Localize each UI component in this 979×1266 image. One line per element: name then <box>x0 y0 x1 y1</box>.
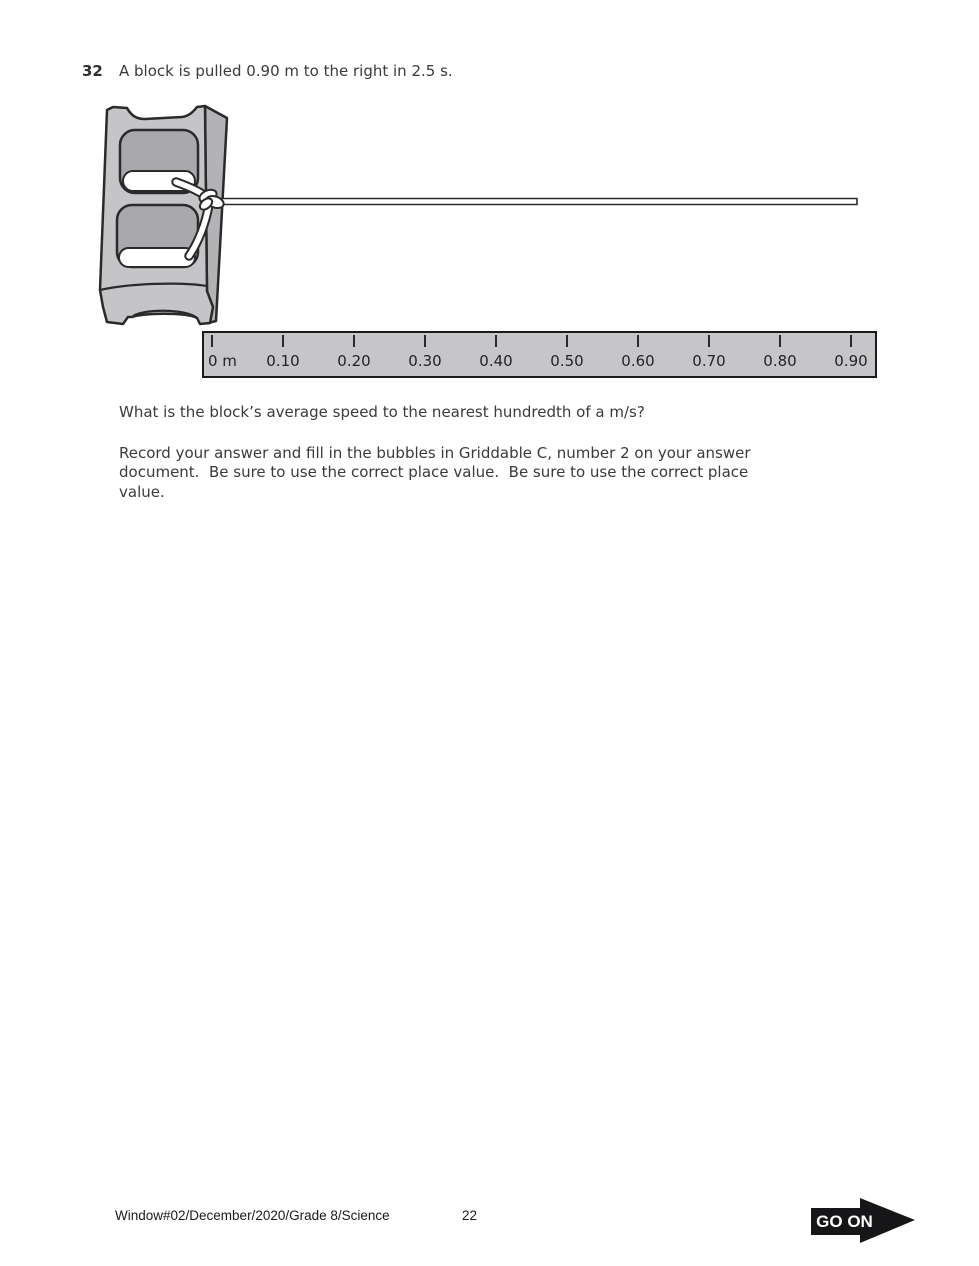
ruler-tick <box>708 335 710 347</box>
ruler-tick <box>850 335 852 347</box>
ruler-tick <box>211 335 213 347</box>
ruler-tick-label: 0.40 <box>466 352 526 370</box>
ruler-tick-label: 0 m <box>208 352 237 370</box>
ruler-tick-label: 0.20 <box>324 352 384 370</box>
document-id: Window#02/December/2020/Grade 8/Science <box>115 1208 390 1223</box>
question-intro-text: A block is pulled 0.90 m to the right in… <box>119 62 453 80</box>
page-number: 22 <box>462 1208 477 1223</box>
go-on-marker: GO ON <box>811 1208 878 1235</box>
go-on-label: GO ON <box>816 1212 873 1232</box>
rope-line <box>218 199 857 205</box>
ruler-tick-label: 0.30 <box>395 352 455 370</box>
ruler-tick <box>566 335 568 347</box>
ruler-tick-label: 0.10 <box>253 352 313 370</box>
ruler-tick-label: 0.80 <box>750 352 810 370</box>
test-document-page: 32 A block is pulled 0.90 m to the right… <box>0 0 979 1266</box>
ruler-tick <box>637 335 639 347</box>
question-number: 32 <box>82 62 103 80</box>
answer-instructions-line: Record your answer and fill in the bubbl… <box>119 444 751 463</box>
block-rope-illustration <box>90 95 880 335</box>
block-lower-hole-highlight <box>119 248 195 267</box>
ruler-tick <box>353 335 355 347</box>
ruler-tick-label: 0.50 <box>537 352 597 370</box>
answer-instructions-line: document. Be sure to use the correct pla… <box>119 463 751 482</box>
distance-ruler: 0 m0.100.200.300.400.500.600.700.800.90 <box>202 331 877 378</box>
ruler-tick <box>495 335 497 347</box>
ruler-tick-label: 0.90 <box>821 352 881 370</box>
ruler-tick-label: 0.70 <box>679 352 739 370</box>
answer-instructions-line: value. <box>119 483 751 502</box>
ruler-tick <box>282 335 284 347</box>
answer-instructions: Record your answer and fill in the bubbl… <box>119 444 751 502</box>
ruler-tick-label: 0.60 <box>608 352 668 370</box>
ruler-tick <box>779 335 781 347</box>
ruler-tick <box>424 335 426 347</box>
question-prompt: What is the block’s average speed to the… <box>119 403 645 421</box>
